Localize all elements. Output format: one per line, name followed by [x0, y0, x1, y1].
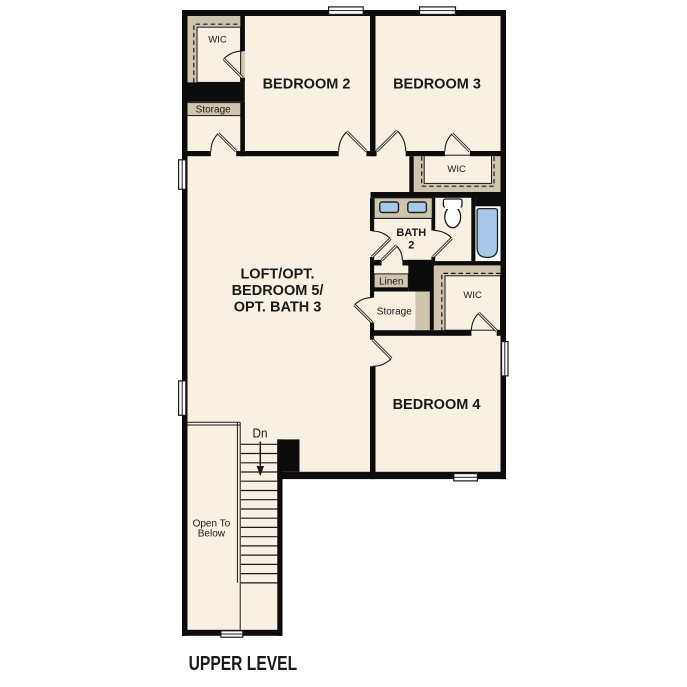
- svg-text:Linen: Linen: [379, 277, 403, 288]
- svg-text:BEDROOM 3: BEDROOM 3: [393, 77, 481, 93]
- svg-text:BEDROOM 4: BEDROOM 4: [393, 397, 481, 413]
- svg-text:UPPER LEVEL: UPPER LEVEL: [189, 653, 298, 675]
- svg-text:Dn: Dn: [253, 425, 268, 440]
- svg-text:2: 2: [408, 239, 414, 251]
- svg-text:LOFT/OPT.: LOFT/OPT.: [240, 267, 314, 283]
- svg-text:Below: Below: [198, 529, 226, 540]
- svg-text:OPT. BATH 3: OPT. BATH 3: [234, 300, 322, 316]
- svg-text:WIC: WIC: [447, 164, 466, 175]
- svg-text:Storage: Storage: [377, 307, 412, 318]
- svg-text:BEDROOM 5/: BEDROOM 5/: [232, 283, 324, 299]
- svg-text:WIC: WIC: [208, 35, 227, 46]
- svg-text:BEDROOM 2: BEDROOM 2: [263, 77, 351, 93]
- svg-text:WIC: WIC: [463, 290, 482, 301]
- svg-text:BATH: BATH: [396, 227, 426, 239]
- svg-text:Storage: Storage: [196, 105, 231, 116]
